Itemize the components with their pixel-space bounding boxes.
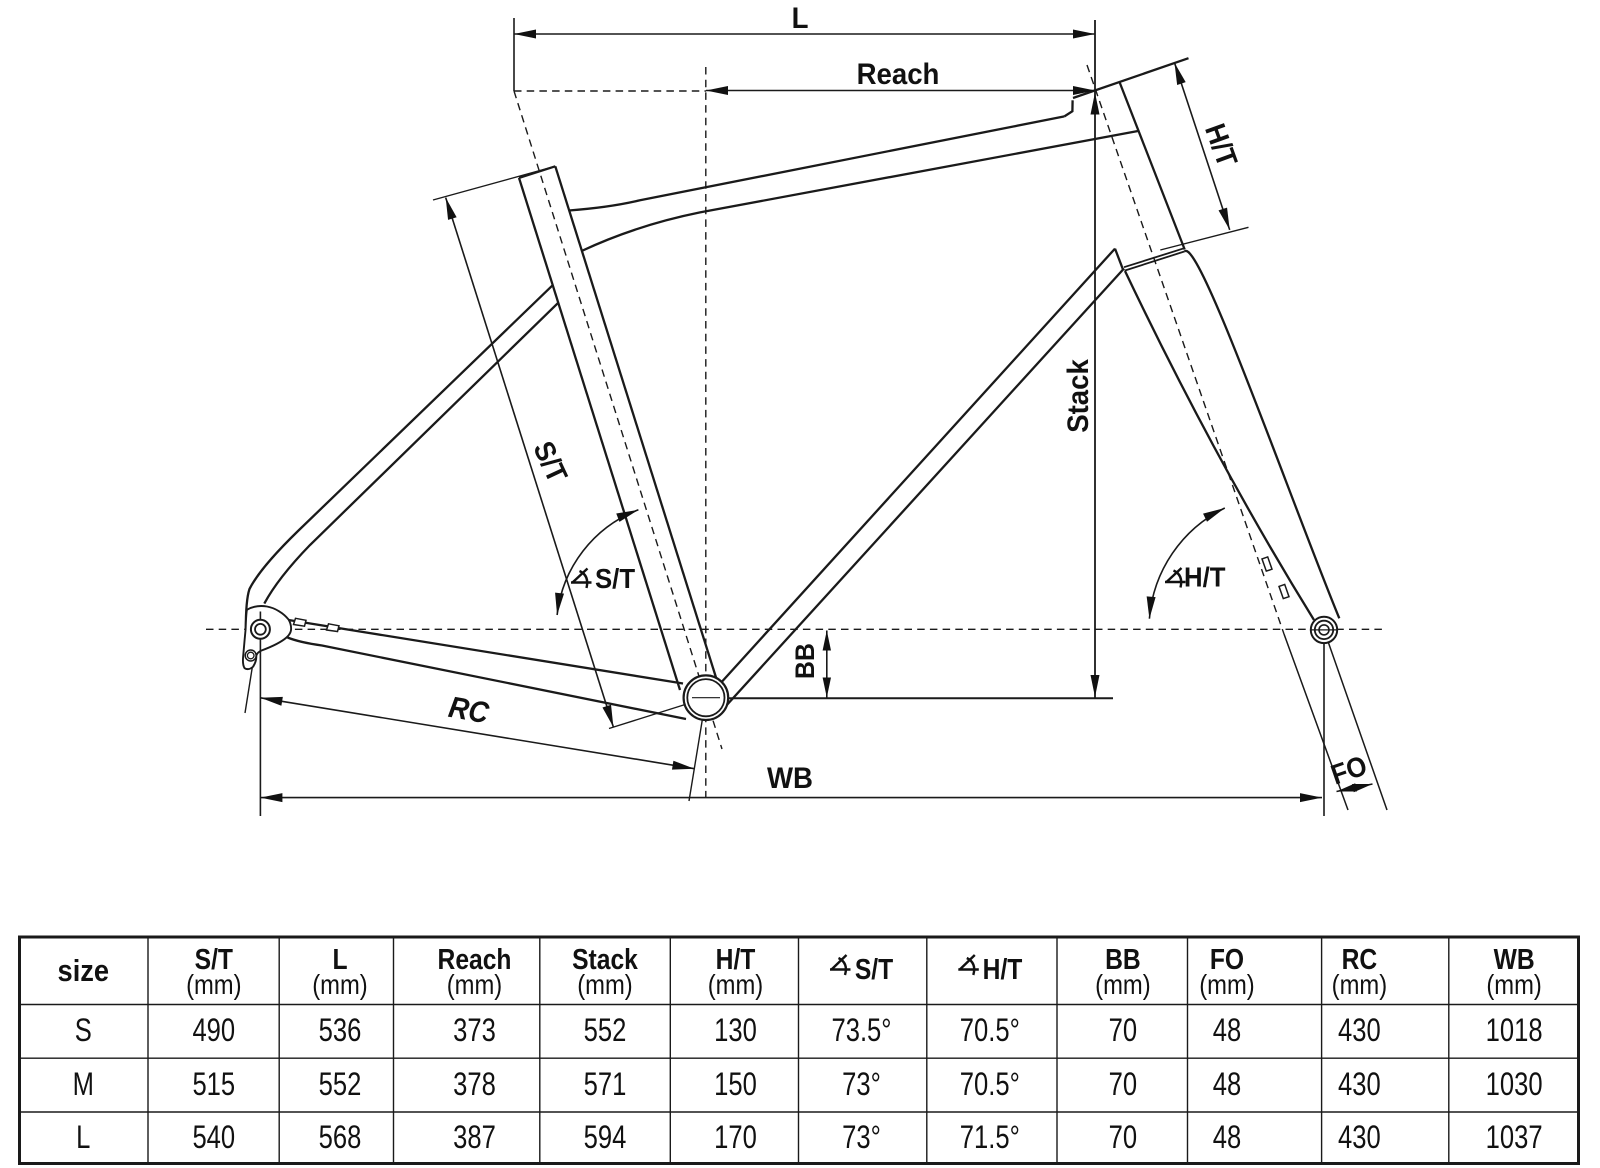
svg-text:73°: 73°: [842, 1067, 881, 1102]
svg-text:70: 70: [1109, 1067, 1137, 1102]
svg-text:H/T: H/T: [1199, 119, 1244, 170]
svg-text:Reach: Reach: [857, 58, 940, 91]
svg-text:430: 430: [1338, 1067, 1381, 1102]
svg-text:568: 568: [319, 1120, 362, 1155]
svg-text:70.5°: 70.5°: [960, 1013, 1020, 1048]
svg-text:73°: 73°: [842, 1120, 881, 1155]
svg-text:70: 70: [1109, 1120, 1137, 1155]
svg-text:1030: 1030: [1486, 1067, 1543, 1102]
svg-text:378: 378: [453, 1067, 496, 1102]
svg-text:1037: 1037: [1486, 1120, 1543, 1155]
svg-text:(mm): (mm): [1199, 968, 1254, 1000]
svg-text:1018: 1018: [1486, 1013, 1543, 1048]
svg-text:48: 48: [1213, 1120, 1241, 1155]
svg-text:594: 594: [584, 1120, 627, 1155]
svg-text:(mm): (mm): [708, 968, 763, 1000]
svg-text:515: 515: [192, 1067, 235, 1102]
svg-text:(mm): (mm): [186, 968, 241, 1000]
svg-text:H/T: H/T: [983, 953, 1023, 985]
svg-text:70: 70: [1109, 1013, 1137, 1048]
svg-text:S/T: S/T: [855, 953, 894, 985]
svg-text:S/T: S/T: [527, 436, 574, 487]
svg-text:71.5°: 71.5°: [960, 1120, 1020, 1155]
svg-text:73.5°: 73.5°: [831, 1013, 891, 1048]
svg-text:(mm): (mm): [1486, 968, 1541, 1000]
svg-text:L: L: [792, 2, 809, 35]
svg-text:536: 536: [319, 1013, 362, 1048]
svg-text:Stack: Stack: [1062, 358, 1095, 433]
svg-text:130: 130: [714, 1013, 757, 1048]
svg-text:(mm): (mm): [312, 968, 367, 1000]
svg-text:size: size: [58, 954, 110, 988]
svg-text:373: 373: [453, 1013, 496, 1048]
svg-text:H/T: H/T: [1184, 562, 1226, 593]
svg-text:BB: BB: [791, 643, 820, 679]
svg-text:150: 150: [714, 1067, 757, 1102]
svg-text:(mm): (mm): [577, 968, 632, 1000]
svg-text:70.5°: 70.5°: [960, 1067, 1020, 1102]
svg-text:48: 48: [1213, 1013, 1241, 1048]
svg-text:387: 387: [453, 1120, 496, 1155]
svg-text:S: S: [75, 1013, 92, 1048]
svg-text:RC: RC: [446, 691, 492, 731]
svg-text:WB: WB: [767, 762, 813, 795]
svg-text:552: 552: [319, 1067, 362, 1102]
svg-text:540: 540: [192, 1120, 235, 1155]
svg-text:48: 48: [1213, 1067, 1241, 1102]
svg-text:571: 571: [584, 1067, 627, 1102]
svg-text:S/T: S/T: [595, 563, 636, 594]
svg-text:430: 430: [1338, 1120, 1381, 1155]
svg-text:L: L: [76, 1120, 90, 1155]
svg-text:(mm): (mm): [447, 968, 502, 1000]
svg-text:(mm): (mm): [1332, 968, 1387, 1000]
svg-text:430: 430: [1338, 1013, 1381, 1048]
svg-text:170: 170: [714, 1120, 757, 1155]
svg-text:M: M: [73, 1067, 94, 1102]
svg-text:490: 490: [192, 1013, 235, 1048]
svg-text:(mm): (mm): [1095, 968, 1150, 1000]
svg-text:552: 552: [584, 1013, 627, 1048]
